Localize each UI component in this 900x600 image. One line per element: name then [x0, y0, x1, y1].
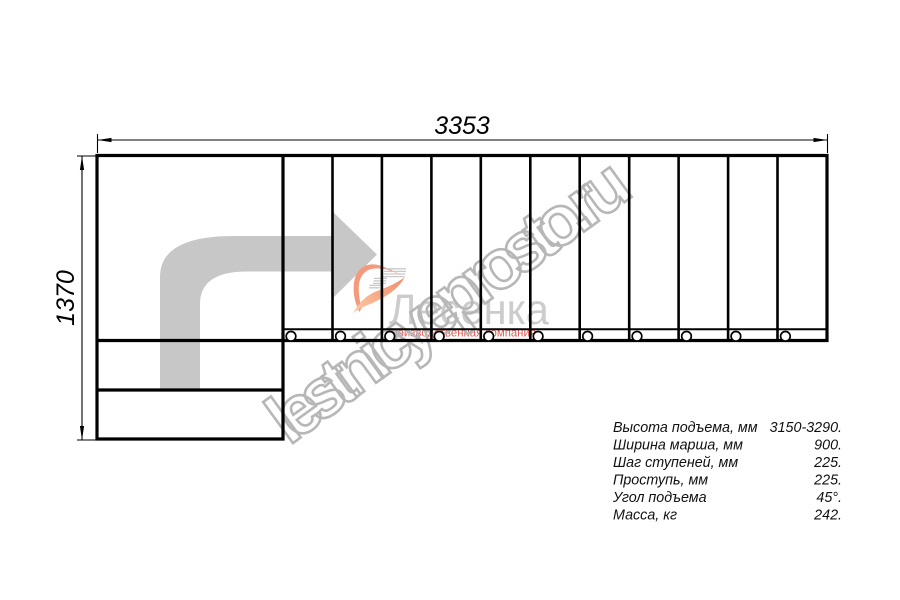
svg-text:3150-3290.: 3150-3290.	[770, 420, 842, 436]
svg-text:Проступь, мм: Проступь, мм	[613, 473, 708, 489]
svg-text:225.: 225.	[813, 473, 842, 489]
svg-text:Высота подъема, мм: Высота подъема, мм	[613, 420, 758, 436]
svg-text:Шаг ступеней, мм: Шаг ступеней, мм	[613, 455, 738, 471]
svg-text:900.: 900.	[814, 438, 842, 454]
svg-text:225.: 225.	[813, 455, 842, 471]
svg-text:3353: 3353	[434, 112, 490, 140]
svg-text:Ширина марша, мм: Ширина марша, мм	[613, 438, 743, 454]
svg-text:1370: 1370	[52, 270, 80, 326]
svg-text:242.: 242.	[813, 508, 842, 524]
svg-text:Масса, кг: Масса, кг	[613, 508, 677, 524]
svg-text:45°.: 45°.	[816, 490, 842, 506]
svg-text:Угол подъема: Угол подъема	[612, 490, 707, 506]
